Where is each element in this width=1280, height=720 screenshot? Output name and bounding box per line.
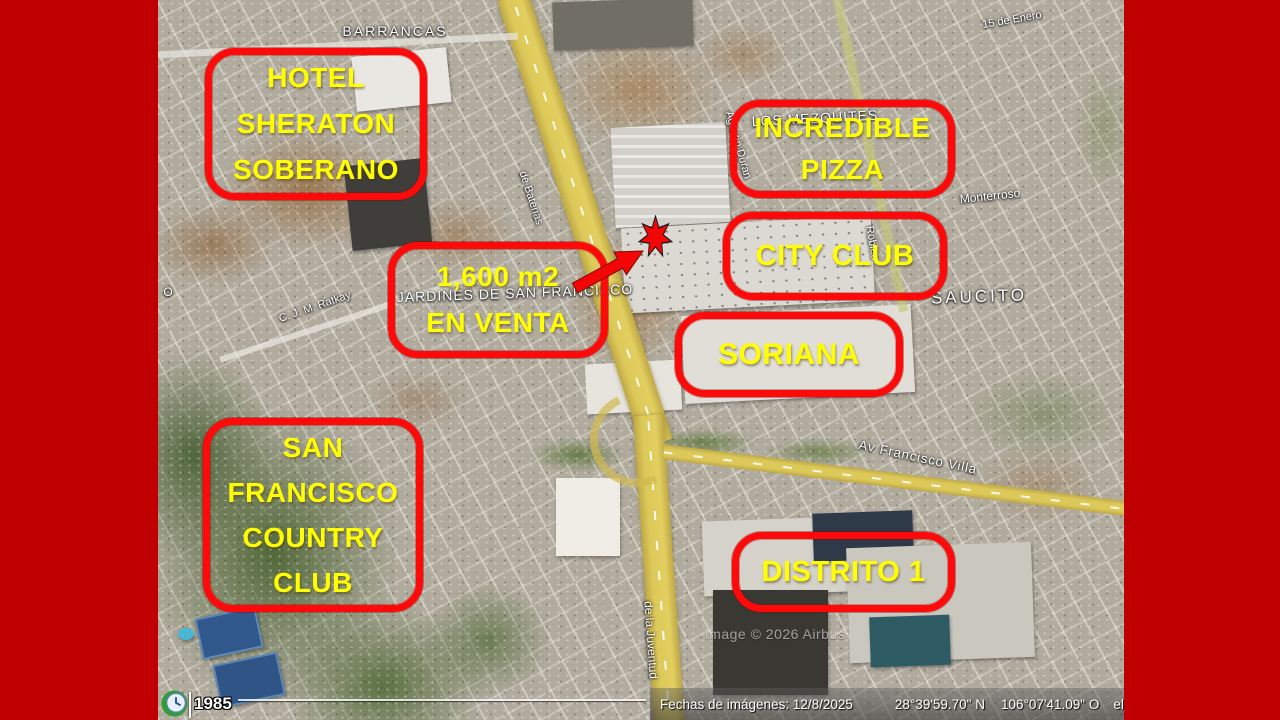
callout-label: HOTEL SHERATON SOBERANO	[233, 55, 399, 193]
slide-background: BARRANCAS LOS MEZQUITES 15 de Enero Mont…	[0, 0, 1280, 720]
callout-label: SAN FRANCISCO COUNTRY CLUB	[228, 425, 399, 605]
callout-distrito-1: DISTRITO 1	[732, 532, 955, 612]
callout-label: SORIANA	[718, 338, 860, 372]
callout-soriana: SORIANA	[675, 312, 903, 397]
callout-label: INCREDIBLE PIZZA	[754, 107, 930, 191]
longitude-text: 106°07'41.09" O	[1001, 697, 1099, 712]
sports-courts-right	[869, 615, 951, 668]
callout-label: 1,600 m2 EN VENTA	[426, 254, 570, 346]
imagery-watermark: Image © 2026 Airbus	[705, 626, 845, 642]
swimming-pool	[178, 628, 194, 640]
parking-lot	[552, 0, 694, 50]
elevation-text-cut: ele	[1113, 697, 1124, 712]
callout-incredible-pizza: INCREDIBLE PIZZA	[730, 100, 955, 198]
area-label-saucito: SAUCITO	[931, 285, 1028, 308]
timeline-track[interactable]	[238, 699, 646, 701]
building-office	[556, 478, 620, 556]
building-incredible-pizza	[610, 122, 730, 228]
callout-san-francisco-country-club: SAN FRANCISCO COUNTRY CLUB	[203, 418, 423, 612]
timeline-year-label[interactable]: 1985	[194, 694, 232, 714]
callout-label: CITY CLUB	[756, 240, 915, 273]
pointer-arrow-icon	[568, 240, 650, 300]
latitude-text: 28°39'59.70" N	[895, 697, 985, 712]
callout-label: DISTRITO 1	[762, 556, 926, 589]
callout-hotel-sheraton-soberano: HOTEL SHERATON SOBERANO	[205, 48, 427, 200]
callout-city-club: CITY CLUB	[723, 212, 947, 300]
street-label-barrancas: BARRANCAS	[342, 23, 447, 39]
satellite-map[interactable]: BARRANCAS LOS MEZQUITES 15 de Enero Mont…	[158, 0, 1124, 720]
historical-imagery-clock-icon[interactable]	[161, 690, 188, 717]
street-label-partial: O	[163, 285, 172, 299]
imagery-date-text: Fechas de imágenes: 12/8/2025	[660, 697, 853, 712]
status-bar: Fechas de imágenes: 12/8/2025 28°39'59.7…	[650, 688, 1124, 720]
timeline-start-tick	[189, 692, 191, 718]
